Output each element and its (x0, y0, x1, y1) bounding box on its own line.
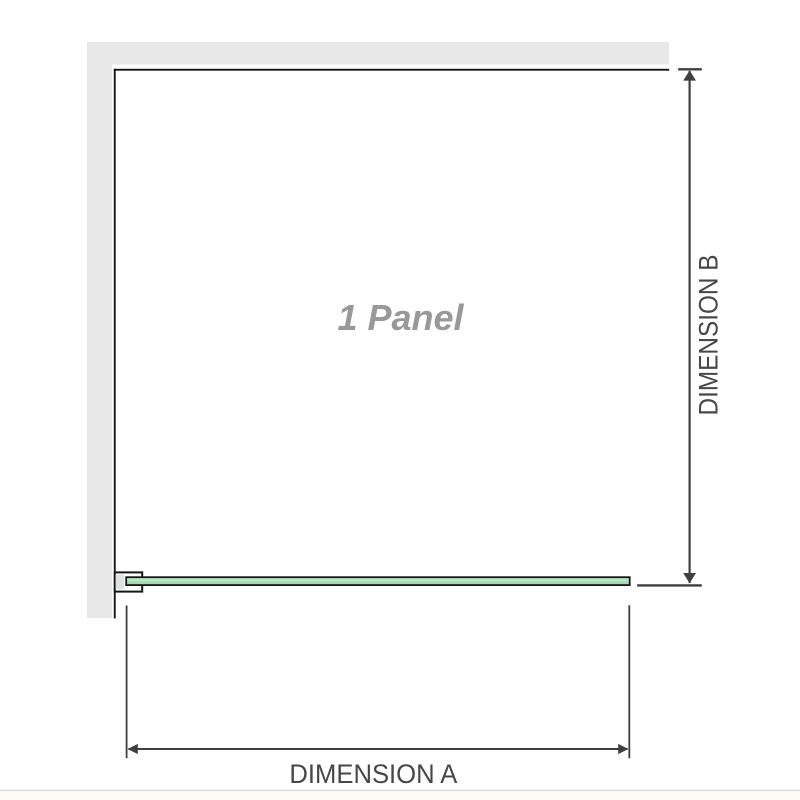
svg-text:DIMENSION A: DIMENSION A (289, 759, 457, 789)
svg-text:DIMENSION B: DIMENSION B (693, 255, 723, 416)
svg-text:1 Panel: 1 Panel (337, 297, 464, 338)
